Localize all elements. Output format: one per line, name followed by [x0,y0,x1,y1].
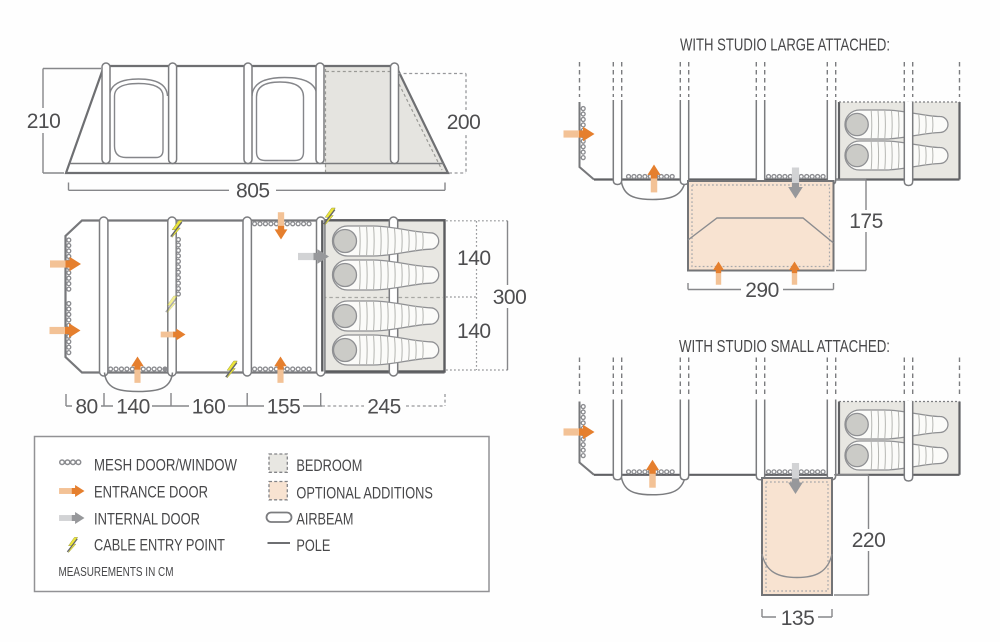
svg-text:220: 220 [852,529,886,552]
svg-text:BEDROOM: BEDROOM [296,457,362,475]
svg-text:WITH STUDIO LARGE ATTACHED:: WITH STUDIO LARGE ATTACHED: [680,35,890,55]
svg-text:ENTRANCE DOOR: ENTRANCE DOOR [94,484,208,502]
svg-text:AIRBEAM: AIRBEAM [296,511,353,529]
svg-text:MEASUREMENTS IN CM: MEASUREMENTS IN CM [59,564,174,579]
svg-text:210: 210 [27,110,61,133]
svg-text:80: 80 [75,396,97,419]
svg-text:135: 135 [781,607,815,630]
svg-text:INTERNAL DOOR: INTERNAL DOOR [94,510,200,528]
svg-text:300: 300 [493,286,527,309]
svg-text:290: 290 [745,279,779,302]
svg-text:200: 200 [447,111,481,134]
svg-text:OPTIONAL ADDITIONS: OPTIONAL ADDITIONS [296,484,433,502]
svg-text:WITH STUDIO SMALL ATTACHED:: WITH STUDIO SMALL ATTACHED: [679,336,890,356]
svg-text:140: 140 [457,320,491,343]
svg-text:155: 155 [267,396,301,419]
svg-text:MESH DOOR/WINDOW: MESH DOOR/WINDOW [94,457,237,475]
svg-text:140: 140 [116,396,150,419]
svg-text:140: 140 [457,247,491,270]
svg-text:805: 805 [236,180,270,203]
svg-text:160: 160 [192,396,226,419]
svg-text:175: 175 [849,210,883,233]
svg-text:CABLE ENTRY POINT: CABLE ENTRY POINT [94,537,225,555]
svg-text:POLE: POLE [296,537,330,555]
svg-text:245: 245 [367,396,401,419]
